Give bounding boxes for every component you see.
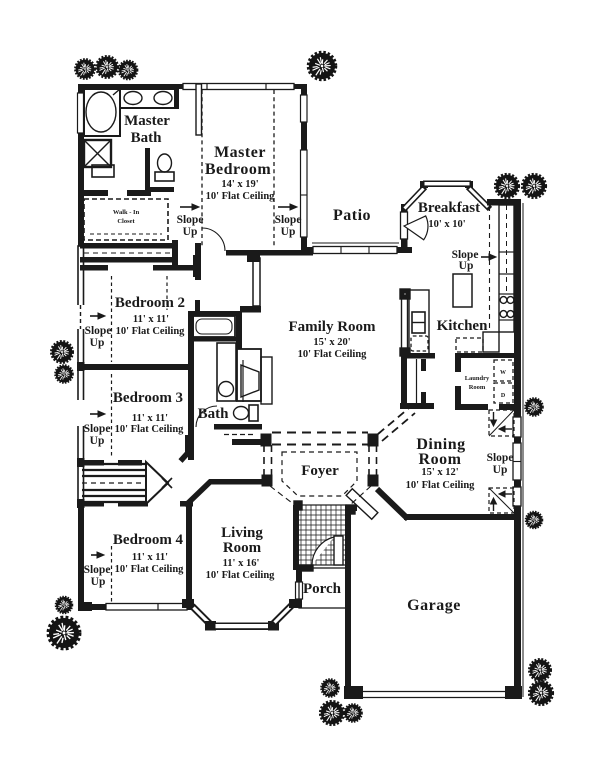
svg-text:W: W: [500, 370, 506, 376]
svg-text:10' Flat Ceiling: 10' Flat Ceiling: [115, 424, 185, 435]
svg-text:Up: Up: [459, 260, 474, 272]
svg-text:10' Flat Ceiling: 10' Flat Ceiling: [206, 570, 276, 581]
svg-text:11' x 11': 11' x 11': [132, 552, 168, 563]
svg-text:Up: Up: [90, 435, 105, 447]
svg-text:Bedroom 2: Bedroom 2: [115, 295, 185, 311]
svg-text:Room: Room: [469, 384, 486, 391]
svg-text:11' x 11': 11' x 11': [133, 314, 169, 325]
svg-text:Slope: Slope: [85, 325, 112, 337]
svg-text:Slope: Slope: [487, 452, 514, 464]
svg-text:Room: Room: [223, 540, 262, 556]
svg-text:Laundry: Laundry: [465, 375, 490, 382]
svg-text:Bedroom: Bedroom: [205, 161, 271, 178]
svg-text:D: D: [501, 393, 506, 399]
svg-text:Living: Living: [221, 525, 263, 541]
svg-text:Kitchen: Kitchen: [437, 318, 488, 334]
svg-text:15' x 20': 15' x 20': [313, 337, 350, 348]
svg-text:10' Flat Ceiling: 10' Flat Ceiling: [116, 326, 186, 337]
svg-text:11' x 11': 11' x 11': [132, 413, 168, 424]
svg-text:11' x 16': 11' x 16': [223, 558, 260, 569]
svg-text:Up: Up: [91, 576, 106, 588]
svg-text:Family Room: Family Room: [288, 319, 376, 335]
svg-text:Breakfast: Breakfast: [418, 200, 480, 216]
svg-text:15' x 12': 15' x 12': [421, 467, 458, 478]
svg-text:Room: Room: [419, 451, 462, 468]
svg-text:Bath: Bath: [198, 406, 230, 422]
svg-text:Slope: Slope: [84, 564, 111, 576]
svg-text:Porch: Porch: [303, 581, 342, 597]
svg-text:Master: Master: [214, 144, 266, 161]
svg-text:Bath: Bath: [131, 130, 163, 146]
svg-text:Foyer: Foyer: [301, 463, 339, 479]
svg-text:Patio: Patio: [333, 207, 371, 224]
svg-text:Up: Up: [90, 337, 105, 349]
svg-text:10' Flat Ceiling: 10' Flat Ceiling: [298, 349, 368, 360]
svg-text:Closet: Closet: [117, 218, 135, 225]
svg-text:Up: Up: [281, 226, 296, 238]
svg-text:10' Flat Ceiling: 10' Flat Ceiling: [115, 564, 185, 575]
svg-text:Up: Up: [183, 226, 198, 238]
svg-text:10' x 10': 10' x 10': [428, 219, 465, 230]
svg-text:Bedroom 4: Bedroom 4: [113, 532, 184, 548]
svg-text:Slope: Slope: [177, 214, 204, 226]
svg-text:Up: Up: [493, 464, 508, 476]
svg-text:Master: Master: [124, 113, 170, 129]
svg-text:Slope: Slope: [275, 214, 302, 226]
svg-text:Walk - In: Walk - In: [113, 209, 140, 216]
svg-text:14' x 19': 14' x 19': [221, 179, 258, 190]
svg-text:10' Flat Ceiling: 10' Flat Ceiling: [406, 480, 476, 491]
svg-text:10' Flat Ceiling: 10' Flat Ceiling: [206, 191, 276, 202]
svg-text:Garage: Garage: [407, 597, 461, 614]
svg-text:Bedroom 3: Bedroom 3: [113, 390, 183, 406]
svg-text:Slope: Slope: [84, 423, 111, 435]
